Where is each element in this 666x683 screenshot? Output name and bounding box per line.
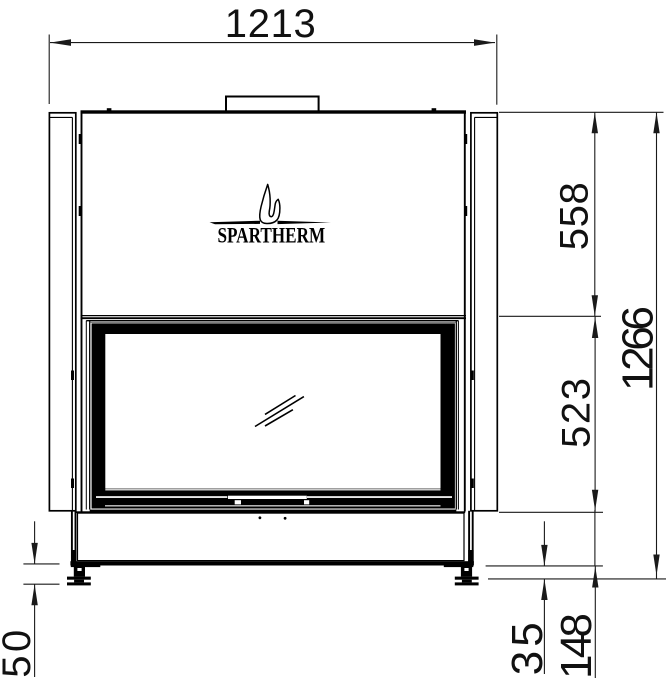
svg-text:558: 558 — [552, 182, 596, 250]
svg-text:1213: 1213 — [225, 2, 316, 46]
svg-text:148: 148 — [552, 613, 601, 679]
svg-text:SPARTHERM: SPARTHERM — [217, 223, 325, 248]
svg-text:1266: 1266 — [614, 306, 663, 391]
svg-text:523: 523 — [554, 378, 598, 448]
